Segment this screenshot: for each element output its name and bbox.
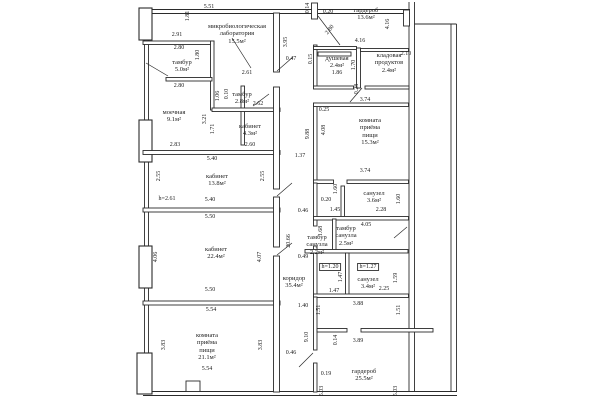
dimension-label: 1.81 (185, 11, 191, 22)
room-label-laboratory: микробиологическая лаборатория15.5м² (202, 23, 272, 45)
room-label-wardrobe-136: гардероб13.6м² (343, 7, 389, 22)
dimension-label: 2.80 (174, 45, 185, 51)
dimension-label: 4.08 (321, 125, 327, 136)
dimension-label: 3.88 (353, 301, 364, 307)
dimension-label: 0.20 (323, 9, 334, 15)
room-area: 22.4м² (196, 253, 236, 260)
room-name: кабинет (230, 123, 270, 130)
dimension-label: 3.74 (360, 168, 371, 174)
dimension-label: 2.62 (253, 101, 264, 107)
dimension-label: 5.03 (393, 386, 399, 397)
dimension-label: 1.59 (393, 273, 399, 284)
dimension-label: 4.16 (385, 19, 391, 30)
dimension-label: 5.40 (205, 197, 216, 203)
dimension-label: 20.66 (286, 234, 292, 248)
room-name: комната приёма пищи (352, 117, 388, 139)
dimension-label: 1.45 (330, 207, 341, 213)
room-area: 9.1м² (153, 116, 195, 123)
room-name: санузел (348, 276, 388, 283)
dimension-label: 2.10 (401, 51, 412, 57)
dimension-label: 4.06 (153, 252, 159, 263)
room-name: тамбур (165, 59, 199, 66)
dimension-label: 4.05 (361, 222, 372, 228)
room-name: гардероб (341, 368, 387, 375)
dimension-label: 3.21 (202, 114, 208, 125)
room-name: гардероб (343, 7, 389, 14)
dimension-label: 1.71 (210, 124, 216, 135)
dimension-label: 4.07 (257, 252, 263, 263)
dimension-label: 2.61 (242, 70, 253, 76)
dimension-label: 3.89 (353, 338, 364, 344)
room-name: кабинет (197, 173, 237, 180)
room-area: 13.8м² (197, 180, 237, 187)
dimension-label: 4.16 (355, 38, 366, 44)
dimension-label: 3.83 (258, 340, 264, 351)
dimension-label: 0.15 (308, 54, 314, 65)
dimension-label: 5.51 (204, 4, 215, 10)
dimension-label: 1.60 (333, 184, 339, 195)
dimension-label: 1.51 (316, 305, 322, 316)
dimension-label: 0.19 (321, 371, 332, 377)
room-name: коридор (274, 275, 314, 282)
dimension-label: 1.68 (318, 226, 324, 237)
height-mark-label: h=2.61 (159, 196, 176, 202)
dimension-label: 9.10 (304, 332, 310, 343)
dimension-label: 0.28 (354, 84, 360, 95)
dimension-label: 0.47 (286, 56, 297, 62)
room-area: 2.4м² (366, 67, 412, 74)
dimension-label: 1.80 (195, 50, 201, 61)
room-label-dining-211: комната приёма пищи21.1м² (189, 332, 225, 361)
dimension-label: 2.55 (156, 171, 162, 182)
dimension-label: 1.47 (338, 272, 344, 283)
dimension-label: 0.14 (305, 3, 311, 14)
room-area: 35.4м² (274, 282, 314, 289)
room-label-office-224: кабинет22.4м² (196, 246, 236, 261)
dimension-label: 2.80 (174, 83, 185, 89)
dimension-label: 5.50 (205, 287, 216, 293)
room-area: 25.5м² (341, 375, 387, 382)
dimension-label: 5.40 (207, 156, 218, 162)
room-label-wc-tambour-22: тамбур санузла2.2м² (299, 234, 335, 256)
dimension-label: 0.49 (298, 254, 309, 260)
room-area: 15.3м² (352, 139, 388, 146)
room-label-office-43: кабинет4.3м² (230, 123, 270, 138)
dimension-label: 1.06 (215, 91, 221, 102)
room-name: моечная (153, 109, 195, 116)
room-area: 4.3м² (230, 130, 270, 137)
dimension-label: 2.83 (170, 142, 181, 148)
dimension-label: 2.55 (260, 171, 266, 182)
dimension-label: 9.88 (305, 129, 311, 140)
dimension-label: 0.46 (286, 350, 297, 356)
room-label-corridor: коридор35.4м² (274, 275, 314, 290)
room-label-wardrobe-255: гардероб25.5м² (341, 368, 387, 383)
dimension-label: 1.37 (295, 153, 306, 159)
height-mark-label: h=1.27 (357, 263, 379, 271)
room-label-wc-36: санузел3.6м² (354, 190, 394, 205)
room-name: тамбур (225, 91, 259, 98)
room-label-washroom: моечная9.1м² (153, 109, 195, 124)
room-area: 3.6м² (354, 197, 394, 204)
dimension-label: 5.54 (202, 366, 213, 372)
room-name: комната приёма пищи (189, 332, 225, 354)
room-name: микробиологическая лаборатория (202, 23, 272, 38)
room-area: 13.6м² (343, 14, 389, 21)
dimension-label: 0.25 (319, 107, 330, 113)
dimension-label: 0.14 (333, 335, 339, 346)
room-area: 5.0м² (165, 66, 199, 73)
room-label-office-138: кабинет13.8м² (197, 173, 237, 188)
floor-plan: микробиологическая лаборатория15.5м² там… (0, 0, 600, 400)
room-name: кабинет (196, 246, 236, 253)
dimension-label: 1.47 (329, 288, 340, 294)
dimension-label: 3.83 (161, 340, 167, 351)
dimension-label: 1.40 (298, 303, 309, 309)
dimension-label: 1.86 (332, 70, 343, 76)
room-label-tambour-5: тамбур5.0м² (165, 59, 199, 74)
dimension-label: 5.50 (205, 214, 216, 220)
room-label-dining-153: комната приёма пищи15.3м² (352, 117, 388, 146)
dimension-label: 2.28 (376, 207, 387, 213)
room-name: санузел (354, 190, 394, 197)
height-mark-label: h=1.20 (319, 263, 341, 271)
dimension-label: 1.51 (396, 305, 402, 316)
room-name: тамбур санузла (299, 234, 335, 249)
dimension-label: 1.60 (396, 194, 402, 205)
floor-plan-drawing (0, 0, 600, 400)
dimension-label: 2.91 (172, 32, 183, 38)
dimension-label: 0.10 (224, 89, 230, 100)
dimension-label: 1.70 (351, 60, 357, 71)
dimension-label: 0.46 (298, 208, 309, 214)
dimension-label: 3.74 (360, 97, 371, 103)
dimension-label: 0.20 (321, 197, 332, 203)
dimension-label: 5.03 (319, 386, 325, 397)
dimension-label: 5.54 (206, 307, 217, 313)
room-area: 15.5м² (202, 38, 272, 45)
dimension-label: 2.25 (379, 286, 390, 292)
dimension-label: 3.95 (283, 37, 289, 48)
dimension-label: 2.60 (245, 142, 256, 148)
room-area: 21.1м² (189, 354, 225, 361)
